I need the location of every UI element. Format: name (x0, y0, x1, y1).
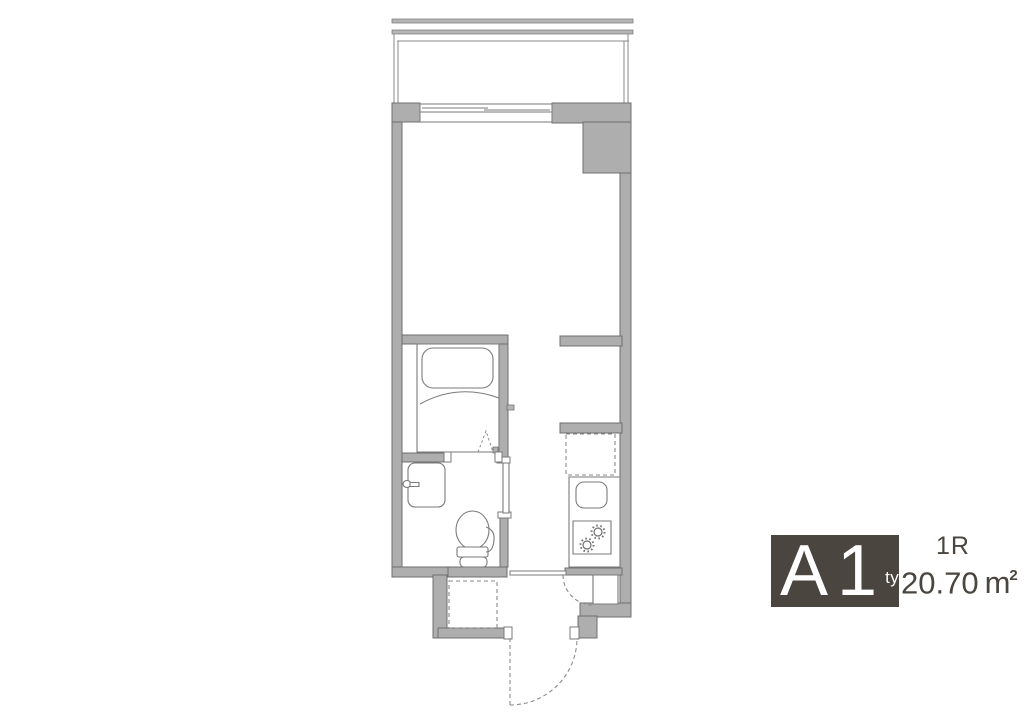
wall-pillar (583, 122, 631, 173)
entrance-door-frame-right (570, 627, 579, 639)
toilet-seat (457, 547, 488, 557)
refrigerator-space (566, 434, 615, 475)
shoe-cabinet (593, 575, 618, 604)
hall-door-swing (563, 575, 593, 605)
wall-window-right-jamb (552, 103, 631, 123)
wall-washroom-bottom (447, 567, 507, 577)
wall-washroom-left (402, 453, 448, 462)
wall-kitchen-bottom (565, 568, 622, 575)
washing-machine-space (449, 581, 497, 628)
switch-mark (507, 405, 514, 410)
faucet-spout (410, 483, 419, 487)
bath-door-frame-right (495, 452, 502, 462)
wall-bathroom-right (499, 344, 508, 458)
entrance-door-frame-left (504, 627, 512, 639)
sliding-window (420, 104, 552, 122)
kitchen (566, 434, 620, 567)
washroom (403, 452, 511, 567)
wall-window-left-jamb (392, 103, 420, 122)
kitchen-sink (576, 482, 607, 508)
wall-washroom-right (500, 518, 508, 567)
entrance-door-swing (510, 638, 577, 705)
wall-entry-right (578, 616, 597, 638)
wall-entry-step (580, 603, 631, 617)
wall-stub-room (560, 336, 622, 346)
bathtub (422, 348, 493, 388)
balcony-railing (392, 19, 633, 103)
washroom-sliding-door (503, 463, 509, 513)
wall-stub-kitchen (560, 423, 622, 433)
bathroom (417, 344, 514, 453)
hall-threshold (510, 571, 566, 575)
bath-door-frame-left (444, 452, 451, 462)
toilet-bowl (456, 511, 489, 549)
floorplan-canvas: A 1 type 1R 20.70m2 (0, 0, 1024, 725)
wall-left (392, 103, 402, 577)
wall-entry-bottom (438, 628, 507, 638)
wall-bathroom-top (402, 335, 508, 344)
floorplan-drawing (0, 0, 1024, 725)
toilet-tank (460, 557, 487, 567)
wall-right (620, 173, 631, 617)
